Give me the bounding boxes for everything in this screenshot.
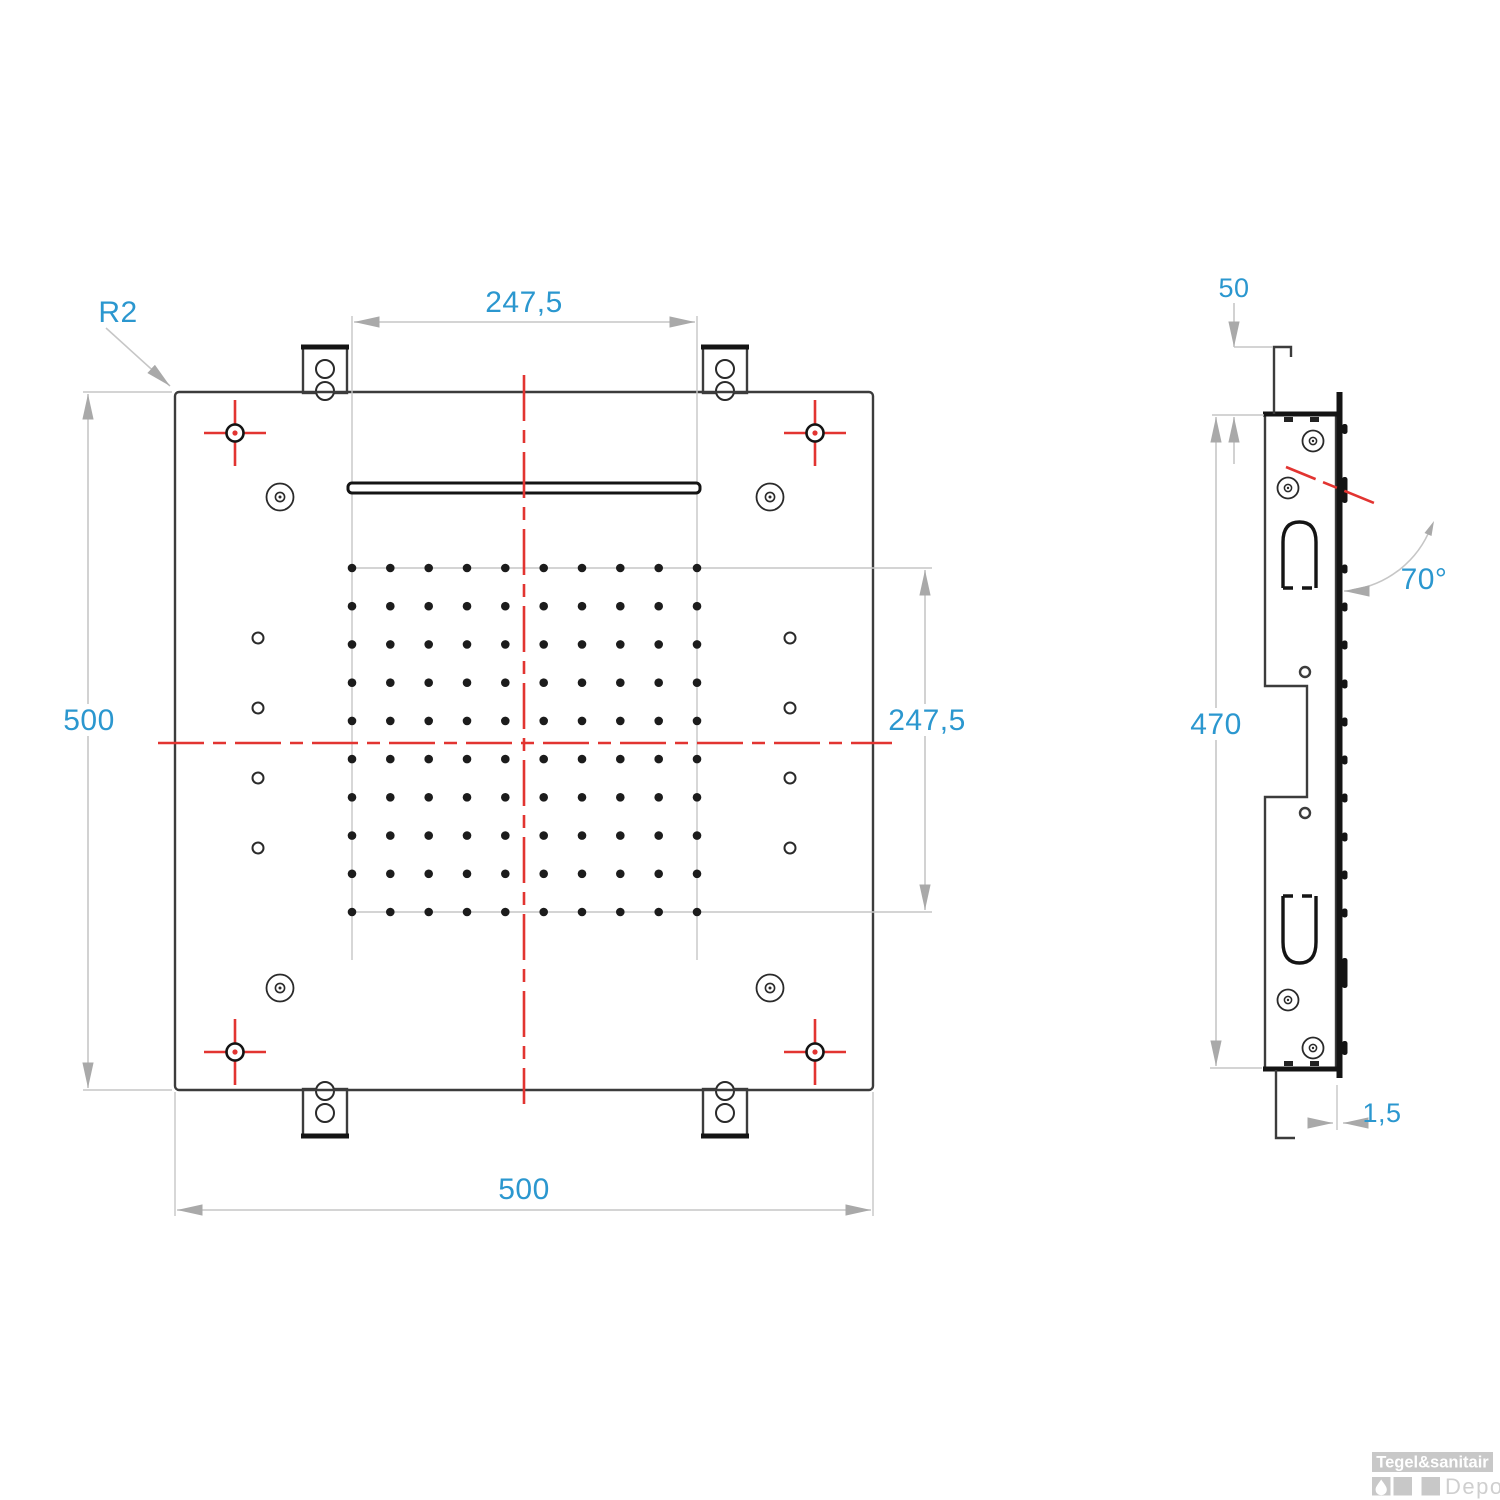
nozzle-dot — [616, 602, 625, 611]
nozzle-dot — [386, 908, 395, 917]
nozzle-dot — [654, 831, 663, 840]
side-body-outline — [1265, 413, 1336, 1070]
front-view: 247,5 500 247,5 500 R2 — [61, 286, 966, 1216]
nozzle-dot — [539, 793, 548, 802]
nozzle-dot — [424, 717, 433, 726]
nozzle-dot — [463, 908, 472, 917]
nozzle-dot — [348, 678, 357, 687]
nozzle-dot — [424, 793, 433, 802]
nozzle-dot — [654, 564, 663, 573]
nozzle-dot — [463, 831, 472, 840]
nozzle-dot — [501, 831, 510, 840]
nozzle-dot — [348, 870, 357, 879]
outer-nozzle-hole — [253, 843, 264, 854]
nozzle-dot — [578, 640, 587, 649]
nozzle-dot — [693, 678, 702, 687]
nozzle-dot — [348, 717, 357, 726]
nozzle-dot — [654, 678, 663, 687]
screw-icon — [757, 484, 784, 511]
hook-top — [1274, 347, 1291, 414]
nozzle-dot — [616, 908, 625, 917]
nozzle-dot — [539, 640, 548, 649]
nozzle-dot — [539, 755, 548, 764]
logo-sub-text: Depot — [1445, 1474, 1500, 1499]
technical-drawing: 247,5 500 247,5 500 R2 — [0, 0, 1500, 1500]
nozzle-dot — [463, 755, 472, 764]
outer-nozzle-hole — [785, 633, 796, 644]
nozzle-dot — [693, 755, 702, 764]
nozzle-dot — [578, 602, 587, 611]
nozzle-dot — [539, 908, 548, 917]
nozzle-dot — [693, 831, 702, 840]
nozzle-dot — [348, 602, 357, 611]
nozzle-dot — [616, 717, 625, 726]
nozzle-dot — [578, 678, 587, 687]
nozzle-dot — [463, 870, 472, 879]
dim-bottom-width: 500 — [175, 1092, 873, 1216]
nozzle-bump — [1342, 1041, 1348, 1055]
nozzle-dot — [539, 831, 548, 840]
nozzle-dot — [693, 640, 702, 649]
nozzle-dot — [501, 564, 510, 573]
nozzle-bump — [1342, 641, 1348, 650]
nozzle-dot — [348, 793, 357, 802]
nozzle-dot — [578, 755, 587, 764]
grid-reference-lines — [352, 316, 932, 960]
nozzle-dot — [463, 564, 472, 573]
nozzle-dot — [348, 831, 357, 840]
nozzle-bump — [1342, 565, 1348, 574]
nozzle-dot — [539, 564, 548, 573]
side-nozzle-bumps — [1342, 424, 1348, 1055]
screw-icon — [1303, 1038, 1324, 1059]
nozzle-dot — [501, 717, 510, 726]
nozzle-dot — [578, 870, 587, 879]
nozzle-dot — [386, 870, 395, 879]
nozzle-dot — [386, 640, 395, 649]
side-view: 50 470 70° 1,5 — [1186, 273, 1447, 1138]
center-mark-icon — [204, 1019, 266, 1085]
dim-top-width: 247,5 — [354, 286, 695, 322]
nozzle-dot — [578, 717, 587, 726]
nozzle-dot — [616, 564, 625, 573]
logo-brand-text: Tegel&sanitair — [1376, 1454, 1489, 1472]
nozzle-dot — [616, 678, 625, 687]
nozzle-dot — [386, 564, 395, 573]
nozzle-dot — [654, 602, 663, 611]
nozzle-dot — [654, 908, 663, 917]
nozzle-dot — [693, 870, 702, 879]
nozzle-dot — [386, 602, 395, 611]
nozzle-dot — [424, 831, 433, 840]
outer-nozzle-hole — [785, 843, 796, 854]
dim-plate-thickness: 1,5 — [1310, 1085, 1402, 1130]
nozzle-bump — [1342, 680, 1348, 689]
screw-icon — [1278, 990, 1299, 1011]
nozzle-dot — [348, 640, 357, 649]
nozzle-bump — [1342, 424, 1348, 434]
nozzle-dot — [501, 640, 510, 649]
outer-nozzle-hole — [785, 703, 796, 714]
nozzle-bump — [1342, 756, 1348, 765]
nozzle-dot — [424, 870, 433, 879]
nozzle-bump — [1342, 794, 1348, 803]
dim-hook-offset-label: 50 — [1218, 273, 1249, 303]
dim-body-height: 470 — [1186, 417, 1262, 1068]
nozzle-dot — [424, 908, 433, 917]
brand-logo: Tegel&sanitair Depot — [1372, 1452, 1500, 1499]
nozzle-dot — [424, 602, 433, 611]
dim-right-height: 247,5 — [886, 570, 966, 910]
dim-spray-angle-label: 70° — [1401, 563, 1448, 596]
dim-top-width-label: 247,5 — [485, 286, 563, 319]
nozzle-dot — [654, 870, 663, 879]
nozzle-bump — [1342, 603, 1348, 612]
nozzle-dot — [654, 717, 663, 726]
nozzle-dot — [693, 908, 702, 917]
nozzle-dot — [616, 831, 625, 840]
nozzle-dot — [463, 602, 472, 611]
dim-spray-angle: 70° — [1344, 521, 1447, 596]
hook-bottom — [1276, 1070, 1295, 1138]
nozzle-dot — [348, 755, 357, 764]
nozzle-dot — [463, 678, 472, 687]
nozzle-dot — [463, 793, 472, 802]
nozzle-dot — [501, 602, 510, 611]
screw-icon — [1278, 478, 1299, 499]
outer-nozzle-hole — [785, 773, 796, 784]
screw-icon — [757, 975, 784, 1002]
dim-plate-thickness-label: 1,5 — [1362, 1098, 1401, 1128]
nozzle-dot — [424, 678, 433, 687]
screw-icon — [1303, 431, 1324, 452]
center-mark-icon — [784, 400, 846, 466]
nozzle-dot — [386, 831, 395, 840]
nozzle-dot — [578, 908, 587, 917]
center-mark-icon — [204, 400, 266, 466]
nozzle-dot — [386, 793, 395, 802]
nozzle-dot — [693, 717, 702, 726]
nozzle-dot — [463, 717, 472, 726]
nozzle-bump — [1342, 833, 1348, 842]
nozzle-dot — [501, 678, 510, 687]
outer-nozzle-hole — [253, 633, 264, 644]
nozzle-dot — [539, 717, 548, 726]
outer-nozzle-hole — [253, 703, 264, 714]
nozzle-bump — [1342, 909, 1348, 918]
nozzle-dot — [501, 908, 510, 917]
nozzle-dot — [348, 564, 357, 573]
nozzle-dot — [501, 793, 510, 802]
drawing-canvas: 247,5 500 247,5 500 R2 — [0, 0, 1500, 1500]
face-plate — [1337, 392, 1343, 1078]
nozzle-dot — [578, 831, 587, 840]
outer-nozzle-hole — [253, 773, 264, 784]
nozzle-dot — [616, 640, 625, 649]
dim-right-height-label: 247,5 — [888, 704, 966, 737]
nozzle-dot — [654, 793, 663, 802]
nozzle-dot — [424, 564, 433, 573]
dim-body-height-label: 470 — [1190, 708, 1242, 741]
nozzle-dot — [501, 870, 510, 879]
dim-bottom-width-label: 500 — [498, 1173, 550, 1206]
center-mark-icon — [784, 1019, 846, 1085]
dim-left-height: 500 — [61, 392, 172, 1090]
nozzle-dot — [539, 602, 548, 611]
nozzle-dot — [654, 755, 663, 764]
nozzle-bump — [1342, 958, 1348, 988]
nozzle-dot — [386, 717, 395, 726]
nozzle-dot — [578, 793, 587, 802]
nozzle-dot — [424, 755, 433, 764]
nozzle-dot — [463, 640, 472, 649]
nozzle-dot — [616, 870, 625, 879]
nozzle-dot — [654, 640, 663, 649]
nozzle-dot — [424, 640, 433, 649]
nozzle-dot — [386, 755, 395, 764]
screw-icon — [267, 975, 294, 1002]
nozzle-dot — [348, 908, 357, 917]
nozzle-dot — [501, 755, 510, 764]
nozzle-bump — [1342, 718, 1348, 727]
nozzle-dot — [539, 678, 548, 687]
nozzle-bump — [1342, 871, 1348, 880]
nozzle-dot — [693, 564, 702, 573]
nozzle-dot — [386, 678, 395, 687]
nozzle-dot — [616, 755, 625, 764]
nozzle-dot — [539, 870, 548, 879]
corner-radius-label: R2 — [98, 296, 137, 329]
callout-corner-radius: R2 — [98, 296, 170, 386]
nozzle-dot — [616, 793, 625, 802]
nozzle-dot — [693, 793, 702, 802]
nozzle-dot — [693, 602, 702, 611]
screw-icon — [267, 484, 294, 511]
dim-left-height-label: 500 — [63, 704, 115, 737]
nozzle-dot — [578, 564, 587, 573]
